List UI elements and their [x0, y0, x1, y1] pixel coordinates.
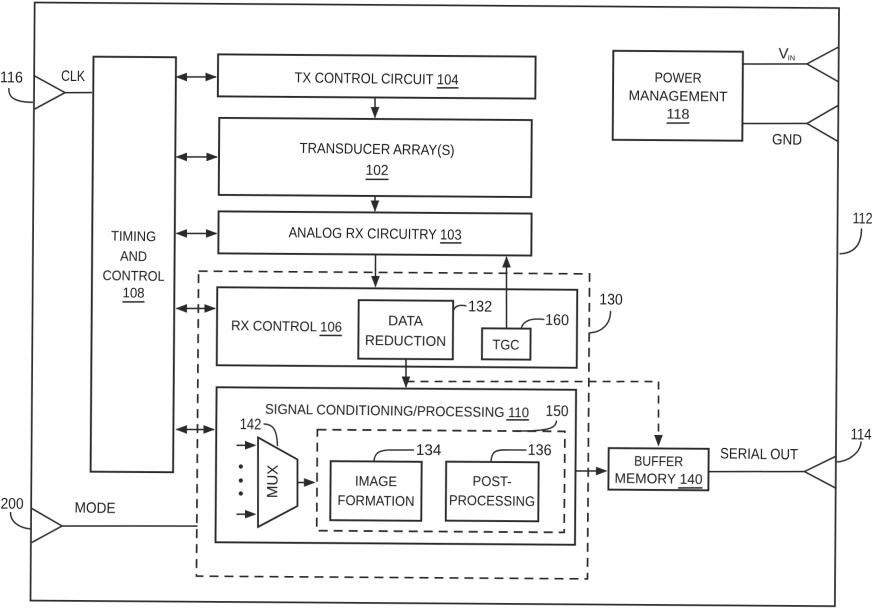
svg-text:TRANSDUCER ARRAY(S): TRANSDUCER ARRAY(S) [299, 141, 454, 159]
svg-text:160: 160 [545, 312, 570, 329]
svg-text:150: 150 [545, 403, 569, 420]
svg-text:116: 116 [0, 69, 23, 86]
svg-text:MEMORY 140: MEMORY 140 [614, 470, 702, 487]
svg-text:POWER: POWER [654, 69, 701, 86]
svg-text:134: 134 [416, 442, 442, 459]
svg-text:MUX: MUX [264, 465, 281, 499]
svg-text:112: 112 [852, 210, 872, 227]
svg-text:200: 200 [0, 496, 24, 513]
svg-text:108: 108 [122, 284, 144, 300]
svg-text:130: 130 [599, 291, 623, 308]
svg-text:REDUCTION: REDUCTION [365, 332, 446, 349]
svg-text:TGC: TGC [492, 336, 519, 352]
svg-text:142: 142 [240, 416, 262, 433]
svg-text:118: 118 [666, 106, 689, 122]
svg-text:TX CONTROL CIRCUIT 104: TX CONTROL CIRCUIT 104 [294, 70, 458, 88]
svg-text:POST-: POST- [472, 473, 512, 490]
svg-text:SIGNAL CONDITIONING/PROCESSING: SIGNAL CONDITIONING/PROCESSING 110 [265, 401, 529, 421]
svg-text:TIMING: TIMING [111, 228, 156, 245]
svg-text:BUFFER: BUFFER [634, 453, 683, 470]
svg-text:GND: GND [772, 131, 802, 148]
svg-text:FORMATION: FORMATION [337, 492, 414, 509]
svg-text:132: 132 [468, 298, 492, 315]
svg-text:PROCESSING: PROCESSING [449, 492, 535, 509]
svg-text:CONTROL: CONTROL [102, 267, 164, 284]
svg-text:114: 114 [850, 426, 872, 443]
svg-text:CLK: CLK [61, 68, 85, 85]
svg-text:AND: AND [120, 248, 147, 264]
svg-text:MODE: MODE [74, 500, 115, 518]
svg-text:102: 102 [365, 163, 388, 179]
svg-text:DATA: DATA [388, 312, 424, 328]
svg-text:MANAGEMENT: MANAGEMENT [628, 87, 728, 104]
svg-text:SERIAL OUT: SERIAL OUT [720, 445, 798, 463]
svg-text:136: 136 [527, 442, 551, 459]
svg-text:ANALOG RX CIRCUITRY 103: ANALOG RX CIRCUITRY 103 [288, 225, 461, 243]
svg-text:IMAGE: IMAGE [355, 473, 397, 490]
svg-text:IN: IN [788, 53, 796, 62]
svg-text:RX CONTROL 106: RX CONTROL 106 [231, 317, 342, 335]
